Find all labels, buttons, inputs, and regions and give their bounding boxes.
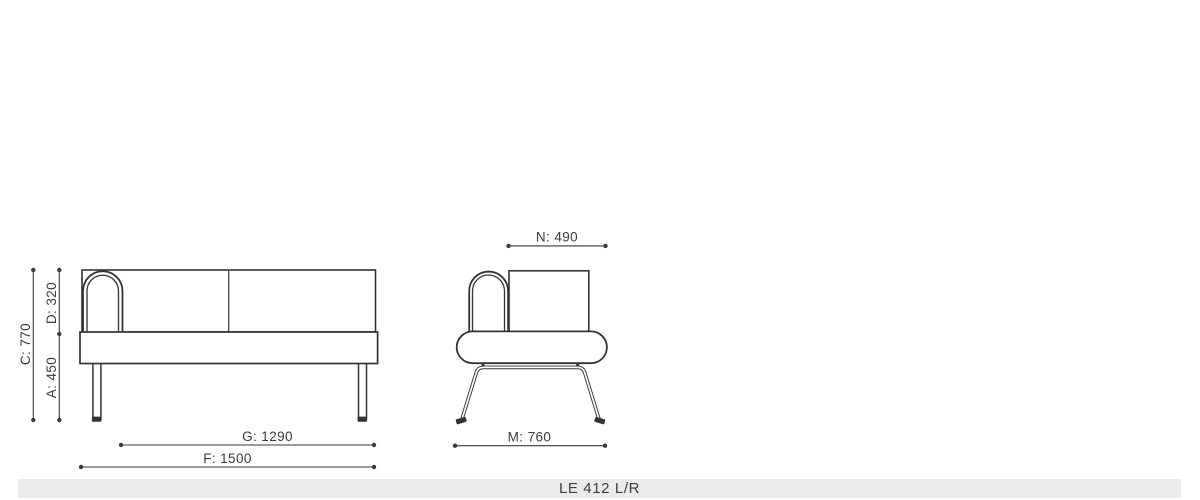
- dim-label-total-height: C: 770: [18, 323, 33, 365]
- side-view-drawing: [455, 271, 606, 425]
- model-name-bar: LE 412 L/R: [18, 479, 1181, 498]
- product-dimension-sheet: C: 770 D: 320 A: 450 G: 1290 F: 1500 N: …: [0, 0, 1200, 500]
- front-right-foot: [358, 417, 368, 422]
- side-armrest-outer: [469, 272, 508, 333]
- side-leg-frame-core: [461, 367, 599, 421]
- front-left-leg: [93, 360, 101, 419]
- side-seat: [457, 331, 607, 363]
- technical-drawing: C: 770 D: 320 A: 450 G: 1290 F: 1500 N: …: [0, 0, 1200, 500]
- dim-label-total-width: F: 1500: [203, 451, 252, 466]
- front-right-leg: [359, 360, 367, 419]
- front-armrest-outer: [83, 271, 123, 333]
- dim-label-inner-depth: N: 490: [536, 230, 578, 245]
- dim-label-backrest-height: D: 320: [44, 282, 59, 324]
- front-view-drawing: [80, 270, 378, 422]
- dim-label-seat-height: A: 450: [44, 357, 59, 398]
- model-name-label: LE 412 L/R: [559, 479, 640, 498]
- dim-label-inner-width: G: 1290: [242, 429, 293, 444]
- front-left-foot: [92, 417, 102, 422]
- side-leg-frame: [461, 367, 599, 421]
- side-backrest: [509, 271, 589, 333]
- front-seat: [80, 332, 378, 364]
- dim-label-total-depth: M: 760: [508, 430, 552, 445]
